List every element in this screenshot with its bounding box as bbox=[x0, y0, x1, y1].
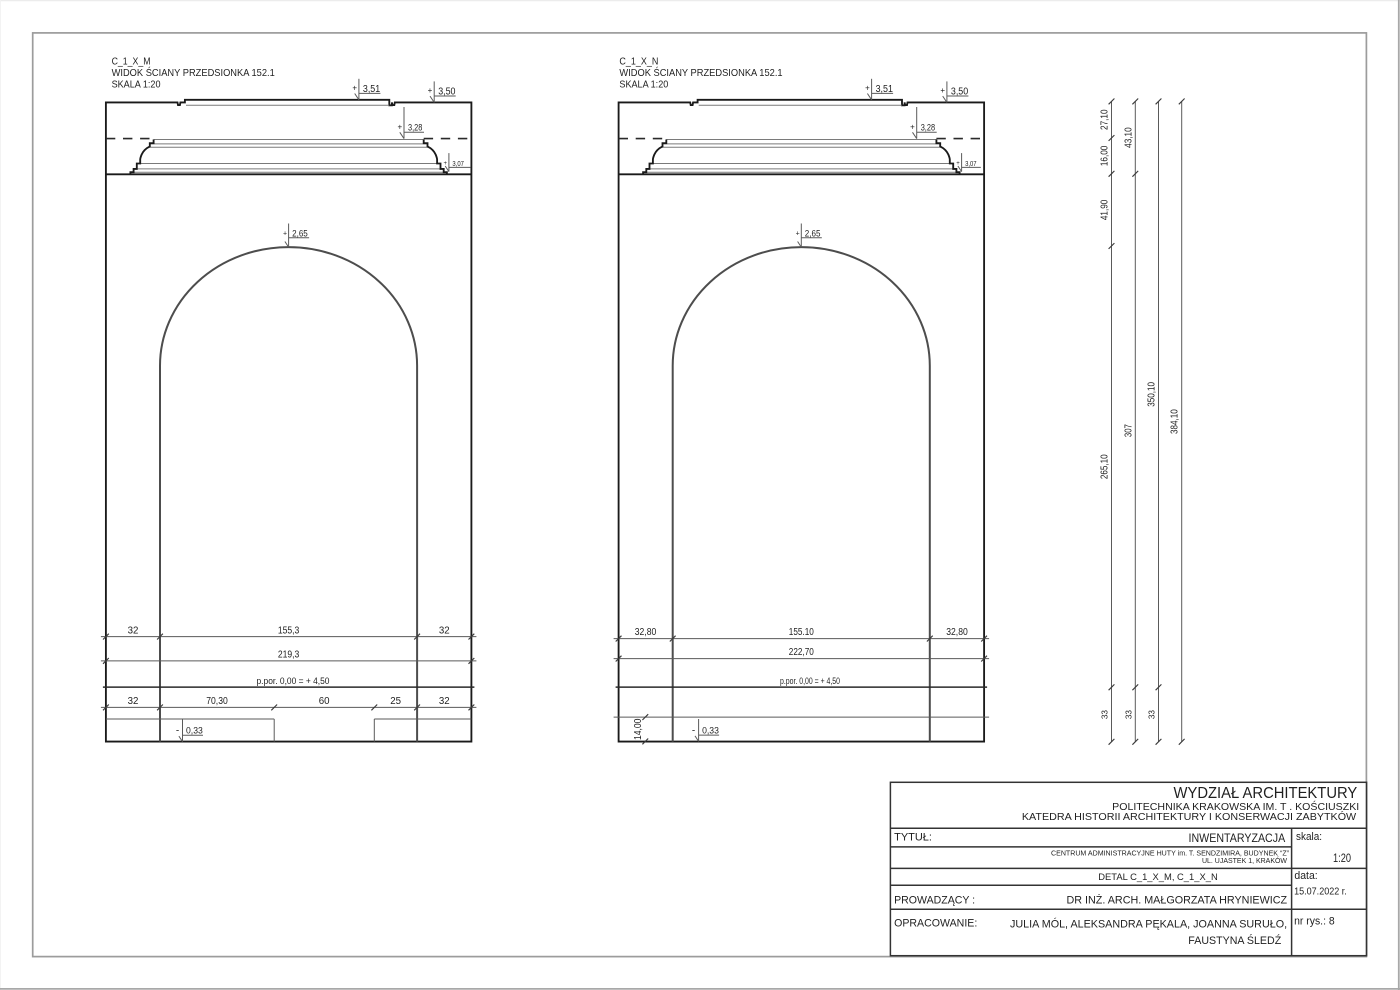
svg-text:350,10: 350,10 bbox=[1147, 381, 1158, 406]
svg-text:+: + bbox=[352, 84, 357, 93]
svg-text:0,33: 0,33 bbox=[702, 725, 719, 735]
svg-text:3,51: 3,51 bbox=[363, 84, 381, 95]
svg-text:TYTUŁ:: TYTUŁ: bbox=[894, 832, 932, 844]
svg-text:222,70: 222,70 bbox=[789, 647, 815, 658]
svg-text:33: 33 bbox=[1148, 710, 1157, 720]
svg-text:32: 32 bbox=[128, 696, 139, 707]
svg-text:DR INŻ. ARCH. MAŁGORZATA HRYNI: DR INŻ. ARCH. MAŁGORZATA HRYNIEWICZ bbox=[1067, 894, 1288, 907]
svg-text:3,07: 3,07 bbox=[452, 159, 464, 168]
svg-text:14,00: 14,00 bbox=[633, 718, 644, 740]
svg-text:3,28: 3,28 bbox=[408, 123, 422, 133]
svg-text:+: + bbox=[910, 122, 915, 131]
svg-text:+: + bbox=[940, 86, 945, 95]
svg-text:32,80: 32,80 bbox=[635, 627, 657, 638]
svg-text:60: 60 bbox=[319, 696, 330, 707]
svg-text:PROWADZĄCY :: PROWADZĄCY : bbox=[894, 895, 975, 907]
svg-text:JULIA MÓL, ALEKSANDRA PĘKALA,: JULIA MÓL, ALEKSANDRA PĘKALA, JOANNA SUR… bbox=[1010, 918, 1287, 931]
svg-text:+: + bbox=[796, 230, 800, 237]
svg-text:WIDOK ŚCIANY PRZEDSIONKA 152.1: WIDOK ŚCIANY PRZEDSIONKA 152.1 bbox=[619, 66, 782, 79]
svg-text:70,30: 70,30 bbox=[206, 696, 228, 707]
svg-text:2,65: 2,65 bbox=[805, 229, 821, 239]
svg-text:32: 32 bbox=[439, 626, 450, 637]
svg-text:16,00: 16,00 bbox=[1100, 145, 1111, 166]
svg-text:DETAL C_1_X_M, C_1_X_N: DETAL C_1_X_M, C_1_X_N bbox=[1098, 872, 1218, 882]
svg-text:KATEDRA HISTORII ARCHITEKTURY: KATEDRA HISTORII ARCHITEKTURY I KONSERWA… bbox=[1022, 810, 1357, 823]
svg-text:219,3: 219,3 bbox=[278, 650, 300, 661]
svg-text:3,50: 3,50 bbox=[438, 87, 456, 98]
svg-text:WIDOK ŚCIANY PRZEDSIONKA 152.1: WIDOK ŚCIANY PRZEDSIONKA 152.1 bbox=[112, 66, 275, 79]
svg-text:27,10: 27,10 bbox=[1100, 109, 1111, 130]
svg-text:32: 32 bbox=[128, 626, 139, 637]
svg-text:33: 33 bbox=[1124, 710, 1133, 720]
svg-text:+: + bbox=[444, 161, 448, 167]
svg-text:INWENTARYZACJA: INWENTARYZACJA bbox=[1189, 831, 1286, 845]
svg-text:2,65: 2,65 bbox=[292, 229, 308, 239]
svg-text:3,07: 3,07 bbox=[965, 159, 977, 168]
svg-text:15.07.2022 r.: 15.07.2022 r. bbox=[1294, 886, 1347, 897]
svg-text:-: - bbox=[692, 726, 695, 737]
svg-text:skala:: skala: bbox=[1296, 831, 1322, 843]
svg-text:+: + bbox=[283, 230, 287, 237]
svg-text:SKALA 1:20: SKALA 1:20 bbox=[619, 80, 668, 91]
svg-text:OPRACOWANIE:: OPRACOWANIE: bbox=[894, 918, 977, 930]
svg-text:-: - bbox=[176, 726, 179, 737]
svg-text:+: + bbox=[956, 161, 960, 167]
svg-text:384,10: 384,10 bbox=[1170, 409, 1181, 434]
svg-text:1:20: 1:20 bbox=[1333, 851, 1351, 865]
svg-text:3,51: 3,51 bbox=[876, 84, 894, 95]
svg-text:p.por. 0,00 = + 4,50: p.por. 0,00 = + 4,50 bbox=[780, 676, 840, 686]
svg-text:UL. UJASTEK 1, KRAKÓW: UL. UJASTEK 1, KRAKÓW bbox=[1202, 856, 1287, 865]
svg-text:25: 25 bbox=[390, 696, 401, 707]
svg-text:p.por. 0,00 = + 4,50: p.por. 0,00 = + 4,50 bbox=[257, 675, 330, 686]
svg-text:+: + bbox=[397, 122, 402, 131]
svg-text:nr rys.: 8: nr rys.: 8 bbox=[1294, 915, 1335, 927]
svg-text:155,3: 155,3 bbox=[278, 626, 300, 637]
svg-text:3,28: 3,28 bbox=[921, 123, 935, 133]
svg-text:+: + bbox=[428, 86, 433, 95]
svg-text:32,80: 32,80 bbox=[946, 627, 968, 638]
svg-text:33: 33 bbox=[1101, 710, 1110, 720]
svg-text:265,10: 265,10 bbox=[1100, 454, 1111, 479]
svg-text:3,50: 3,50 bbox=[951, 87, 969, 98]
svg-text:307: 307 bbox=[1123, 424, 1134, 437]
svg-text:0,33: 0,33 bbox=[186, 726, 203, 736]
svg-text:155.10: 155.10 bbox=[789, 627, 815, 638]
svg-text:SKALA 1:20: SKALA 1:20 bbox=[112, 80, 161, 91]
svg-text:41,90: 41,90 bbox=[1100, 199, 1111, 220]
svg-text:FAUSTYNA ŚLEDŹ: FAUSTYNA ŚLEDŹ bbox=[1188, 934, 1281, 947]
svg-text:WYDZIAŁ ARCHITEKTURY: WYDZIAŁ ARCHITEKTURY bbox=[1174, 785, 1358, 802]
svg-text:C_1_X_N: C_1_X_N bbox=[619, 57, 658, 68]
svg-text:32: 32 bbox=[439, 696, 450, 707]
svg-text:data:: data: bbox=[1294, 870, 1317, 882]
svg-text:+: + bbox=[865, 84, 870, 93]
svg-text:C_1_X_M: C_1_X_M bbox=[112, 57, 151, 68]
svg-text:43,10: 43,10 bbox=[1123, 127, 1134, 148]
